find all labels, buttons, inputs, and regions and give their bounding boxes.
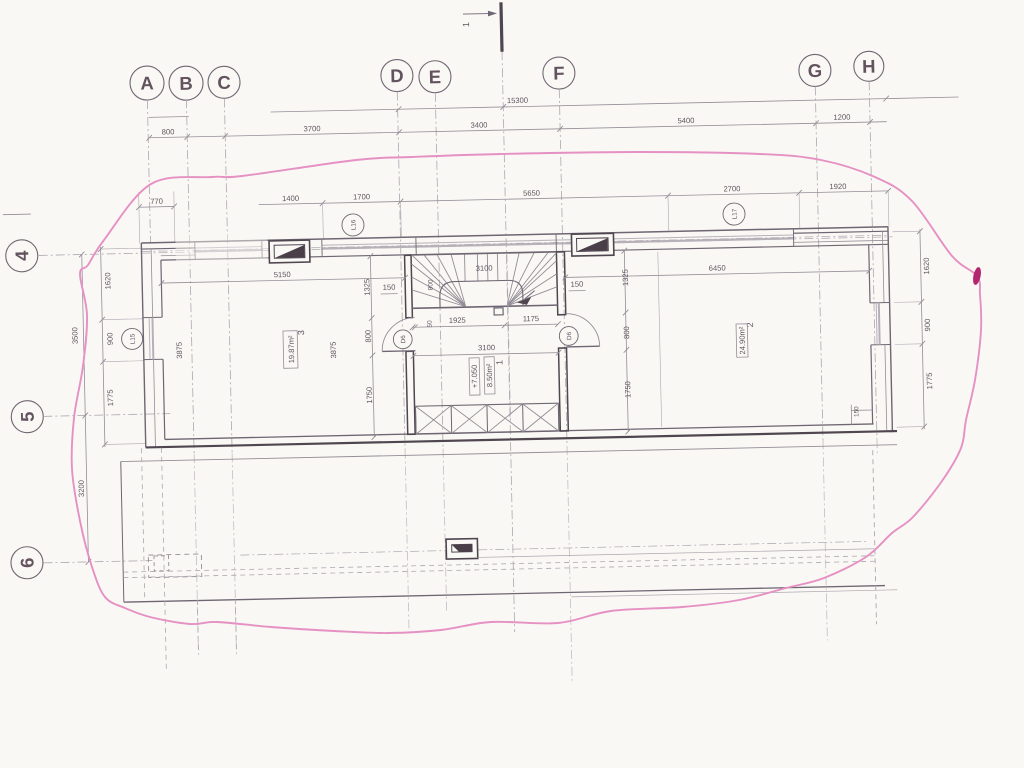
svg-text:900: 900: [105, 332, 114, 345]
svg-text:6450: 6450: [709, 263, 726, 272]
svg-text:1620: 1620: [922, 258, 931, 275]
svg-text:8.50m²: 8.50m²: [485, 363, 495, 387]
svg-text:1750: 1750: [623, 381, 632, 398]
svg-text:2700: 2700: [723, 184, 740, 193]
svg-text:1920: 1920: [829, 182, 846, 191]
svg-text:2: 2: [745, 322, 755, 327]
svg-text:5400: 5400: [677, 116, 694, 125]
svg-text:A: A: [140, 72, 154, 93]
svg-text:C: C: [217, 72, 231, 93]
svg-text:15300: 15300: [507, 96, 528, 105]
svg-text:D: D: [390, 65, 404, 86]
svg-text:L15: L15: [129, 333, 136, 344]
svg-text:3700: 3700: [304, 124, 321, 133]
svg-text:1200: 1200: [833, 112, 850, 121]
svg-text:+7.050: +7.050: [470, 365, 480, 389]
svg-text:1: 1: [494, 360, 504, 365]
svg-text:900: 900: [923, 319, 932, 332]
svg-text:6: 6: [16, 557, 37, 568]
svg-text:150: 150: [853, 406, 860, 417]
svg-text:1775: 1775: [106, 389, 115, 406]
svg-text:L16: L16: [350, 219, 357, 230]
svg-text:150: 150: [570, 280, 583, 289]
svg-text:1700: 1700: [353, 192, 370, 201]
svg-text:1: 1: [461, 22, 471, 27]
svg-text:1925: 1925: [449, 316, 466, 325]
svg-text:150: 150: [383, 283, 396, 292]
svg-text:5650: 5650: [523, 188, 540, 197]
svg-text:1325: 1325: [362, 279, 371, 296]
svg-text:E: E: [429, 66, 442, 87]
svg-text:D6: D6: [566, 331, 573, 340]
svg-text:19.87m²: 19.87m²: [287, 335, 297, 364]
svg-text:800: 800: [427, 279, 434, 290]
svg-text:1325: 1325: [621, 269, 630, 286]
svg-text:3500: 3500: [70, 327, 79, 344]
svg-text:800: 800: [622, 326, 631, 339]
svg-text:3875: 3875: [175, 342, 184, 359]
svg-text:1175: 1175: [523, 314, 540, 323]
svg-text:1400: 1400: [282, 194, 299, 203]
svg-text:800: 800: [162, 127, 175, 136]
svg-text:3875: 3875: [329, 341, 338, 358]
svg-text:5: 5: [17, 411, 38, 422]
svg-text:L17: L17: [731, 208, 738, 219]
svg-text:H: H: [862, 56, 876, 77]
svg-text:1750: 1750: [365, 387, 374, 404]
svg-text:3100: 3100: [478, 343, 495, 352]
svg-text:4: 4: [11, 250, 32, 261]
svg-text:50: 50: [427, 320, 434, 328]
svg-text:G: G: [807, 60, 822, 81]
svg-text:3400: 3400: [470, 120, 487, 129]
svg-text:D6: D6: [400, 335, 407, 344]
svg-text:1775: 1775: [925, 372, 934, 389]
svg-text:1620: 1620: [103, 272, 112, 289]
svg-text:800: 800: [363, 330, 372, 343]
svg-text:F: F: [553, 62, 565, 83]
svg-text:3100: 3100: [476, 264, 493, 273]
svg-text:B: B: [179, 73, 193, 94]
svg-text:770: 770: [150, 197, 163, 206]
svg-text:3200: 3200: [77, 480, 86, 497]
svg-text:5150: 5150: [274, 270, 291, 279]
svg-text:24.90m²: 24.90m²: [737, 326, 747, 355]
